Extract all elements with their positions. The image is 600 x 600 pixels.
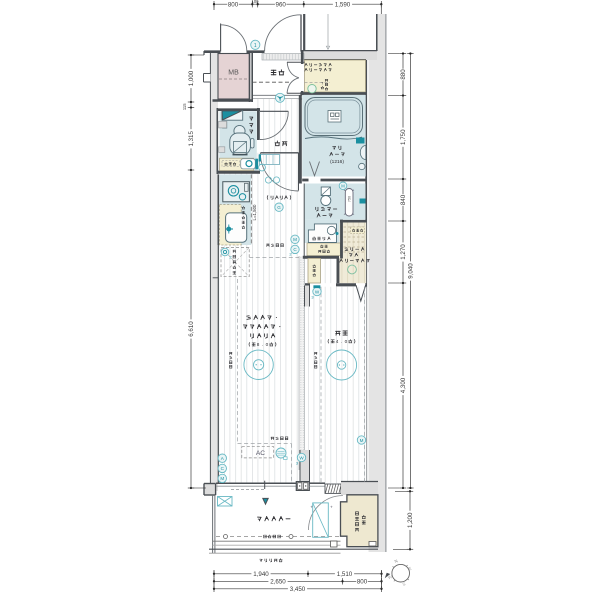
svg-text:.: . — [341, 339, 342, 344]
svg-text:800: 800 — [228, 1, 239, 8]
svg-text:4,300: 4,300 — [400, 377, 407, 393]
svg-text:2,650: 2,650 — [270, 579, 286, 586]
svg-text:1,200: 1,200 — [407, 512, 414, 528]
svg-text:0: 0 — [345, 339, 348, 344]
svg-text:0: 0 — [266, 342, 269, 347]
svg-text:6,610: 6,610 — [188, 321, 195, 337]
svg-text:1,000: 1,000 — [188, 70, 195, 86]
svg-text:AC: AC — [256, 450, 265, 457]
svg-text:+: + — [310, 505, 313, 510]
svg-text:1,315: 1,315 — [188, 130, 195, 146]
svg-text:1,750: 1,750 — [400, 129, 407, 145]
svg-text:M: M — [220, 476, 224, 481]
svg-text:7: 7 — [321, 82, 323, 86]
svg-text:+: + — [330, 505, 333, 510]
svg-text:(1216): (1216) — [330, 159, 344, 165]
svg-text:1,940: 1,940 — [253, 571, 269, 578]
svg-text:.: . — [262, 342, 263, 347]
svg-text:1,590: 1,590 — [335, 1, 351, 8]
svg-text:880: 880 — [400, 69, 407, 80]
svg-text:4: 4 — [336, 339, 339, 344]
svg-text:8: 8 — [257, 342, 260, 347]
svg-text:M: M — [293, 237, 297, 242]
svg-text:MB: MB — [228, 70, 239, 77]
svg-text:800: 800 — [357, 579, 368, 586]
svg-text:1,270: 1,270 — [400, 244, 407, 260]
svg-text:3,450: 3,450 — [290, 586, 306, 593]
svg-text:W: W — [299, 455, 304, 460]
svg-text:W: W — [315, 289, 320, 294]
svg-text:G: G — [277, 205, 281, 210]
svg-text:L=1,500: L=1,500 — [252, 204, 257, 221]
svg-text:9,040: 9,040 — [408, 263, 415, 279]
svg-text:750: 750 — [348, 196, 352, 202]
svg-text:1,510: 1,510 — [337, 571, 353, 578]
svg-text:100: 100 — [252, 0, 260, 4]
svg-text:960: 960 — [276, 1, 287, 8]
svg-text:115: 115 — [182, 103, 187, 110]
svg-text:840: 840 — [400, 194, 407, 205]
svg-text:1: 1 — [254, 43, 257, 49]
svg-text:M: M — [360, 438, 364, 443]
